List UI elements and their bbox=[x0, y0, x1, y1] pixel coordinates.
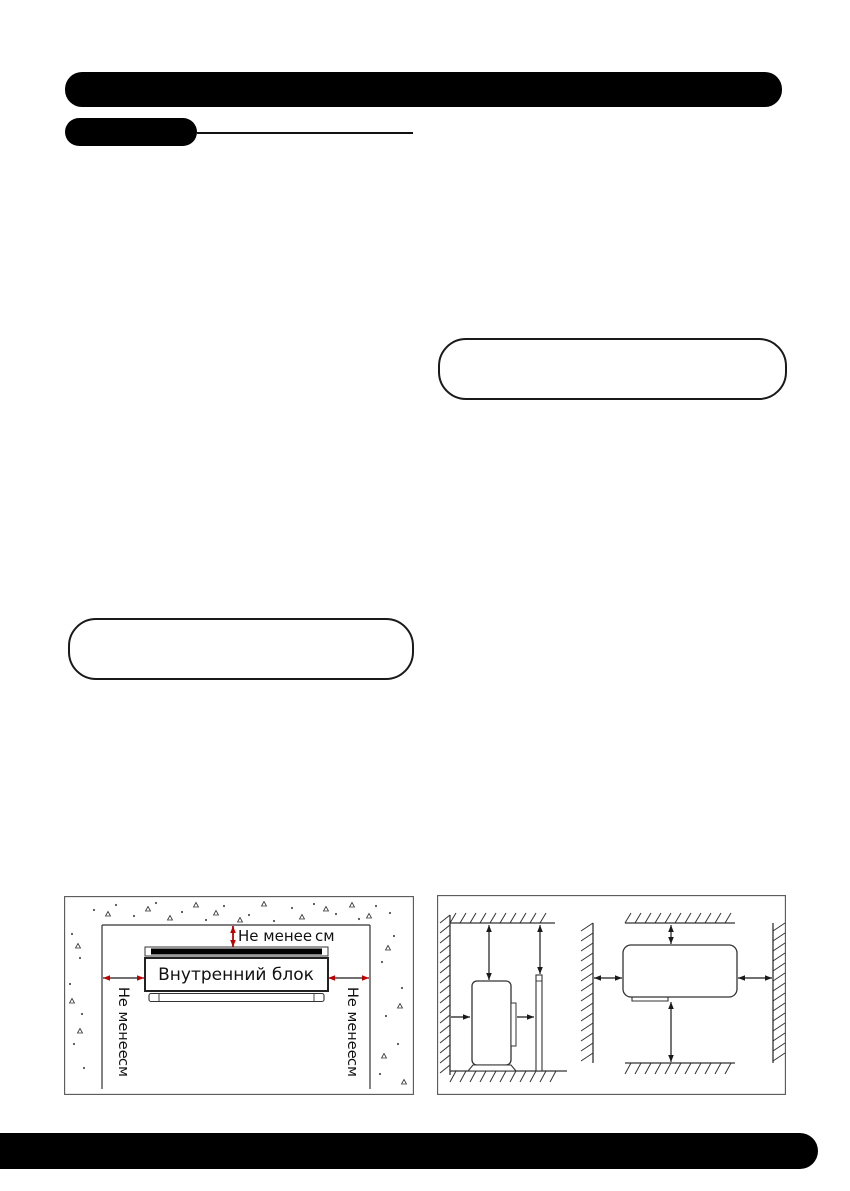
outdoor-clearance-figure bbox=[437, 895, 786, 1095]
top-clearance-unit-label: см bbox=[315, 927, 335, 945]
callout-box-left bbox=[68, 618, 414, 680]
left-clearance-unit-label: см bbox=[115, 1058, 131, 1077]
redacted-section-title bbox=[65, 118, 197, 146]
redacted-header-bar bbox=[65, 72, 782, 107]
outdoor-side-view bbox=[450, 915, 567, 1075]
section-title-underline bbox=[197, 132, 413, 134]
outdoor-unit-plan bbox=[623, 945, 737, 997]
redacted-footer-bar bbox=[0, 1133, 818, 1169]
callout-box-right bbox=[438, 338, 787, 400]
right-clearance-min-label: Не менее bbox=[344, 987, 360, 1059]
unit-base bbox=[468, 1065, 516, 1071]
right-clearance-unit-label: см bbox=[344, 1058, 360, 1077]
indoor-clearance-figure: Внутренний блок Не менее см Не менее см … bbox=[64, 896, 414, 1095]
outdoor-plan-view bbox=[593, 923, 773, 1063]
left-clearance-min-label: Не менее bbox=[115, 987, 131, 1059]
indoor-unit-label: Внутренний блок bbox=[158, 965, 314, 985]
outdoor-unit-side bbox=[472, 981, 511, 1065]
unit-side-panel bbox=[511, 1003, 516, 1046]
unit-louver bbox=[149, 994, 324, 1002]
manual-page: Внутренний блок Не менее см Не менее см … bbox=[0, 0, 850, 1191]
baffle-wall bbox=[536, 975, 542, 1071]
top-clearance-min-label: Не менее bbox=[238, 927, 312, 945]
unit-top-band bbox=[151, 949, 322, 955]
indoor-unit: Внутренний блок bbox=[145, 947, 328, 1002]
